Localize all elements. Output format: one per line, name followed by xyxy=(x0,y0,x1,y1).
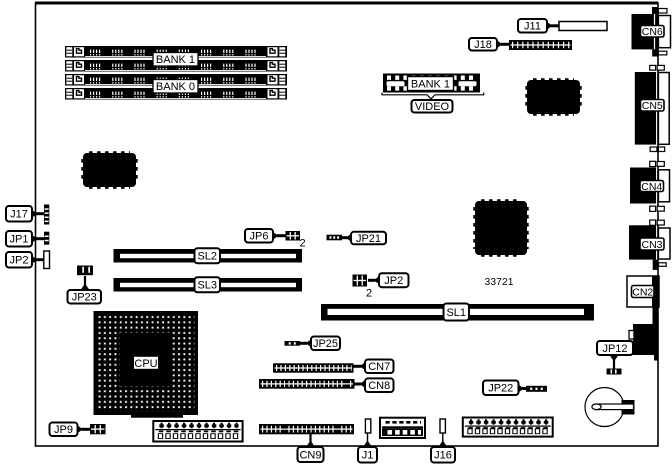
svg-text:SL2: SL2 xyxy=(197,251,217,263)
svg-text:JP2: JP2 xyxy=(384,275,403,287)
svg-text:CN9: CN9 xyxy=(299,450,321,462)
svg-text:CN8: CN8 xyxy=(368,380,390,392)
svg-text:JP1: JP1 xyxy=(10,234,29,246)
svg-text:VIDEO: VIDEO xyxy=(415,101,450,113)
svg-text:J1: J1 xyxy=(362,450,374,462)
svg-text:JP25: JP25 xyxy=(313,338,338,350)
svg-text:J18: J18 xyxy=(474,39,492,51)
svg-text:CN7: CN7 xyxy=(368,361,390,373)
svg-text:SL3: SL3 xyxy=(197,280,217,292)
svg-text:BANK 1: BANK 1 xyxy=(411,79,450,91)
svg-text:CN6: CN6 xyxy=(642,26,663,38)
svg-text:J11: J11 xyxy=(524,21,541,33)
svg-text:J16: J16 xyxy=(434,450,452,462)
svg-text:CPU: CPU xyxy=(134,358,157,370)
svg-text:SL1: SL1 xyxy=(446,307,466,319)
svg-text:33721: 33721 xyxy=(485,277,514,288)
svg-text:CN5: CN5 xyxy=(642,100,663,112)
svg-text:2: 2 xyxy=(366,288,372,300)
svg-text:JP6: JP6 xyxy=(250,231,269,243)
svg-text:JP21: JP21 xyxy=(356,233,381,245)
svg-text:CN2: CN2 xyxy=(632,286,653,298)
svg-text:JP9: JP9 xyxy=(54,424,73,436)
svg-text:CN4: CN4 xyxy=(641,181,662,193)
svg-text:JP2: JP2 xyxy=(10,255,29,267)
svg-text:J17: J17 xyxy=(10,209,28,221)
svg-text:BANK 0: BANK 0 xyxy=(156,81,195,93)
svg-text:CN3: CN3 xyxy=(641,239,662,251)
svg-text:BANK 1: BANK 1 xyxy=(156,54,195,66)
svg-text:JP23: JP23 xyxy=(72,292,97,304)
svg-text:JP12: JP12 xyxy=(602,343,627,355)
svg-text:JP22: JP22 xyxy=(488,383,513,395)
svg-text:2: 2 xyxy=(300,238,306,250)
